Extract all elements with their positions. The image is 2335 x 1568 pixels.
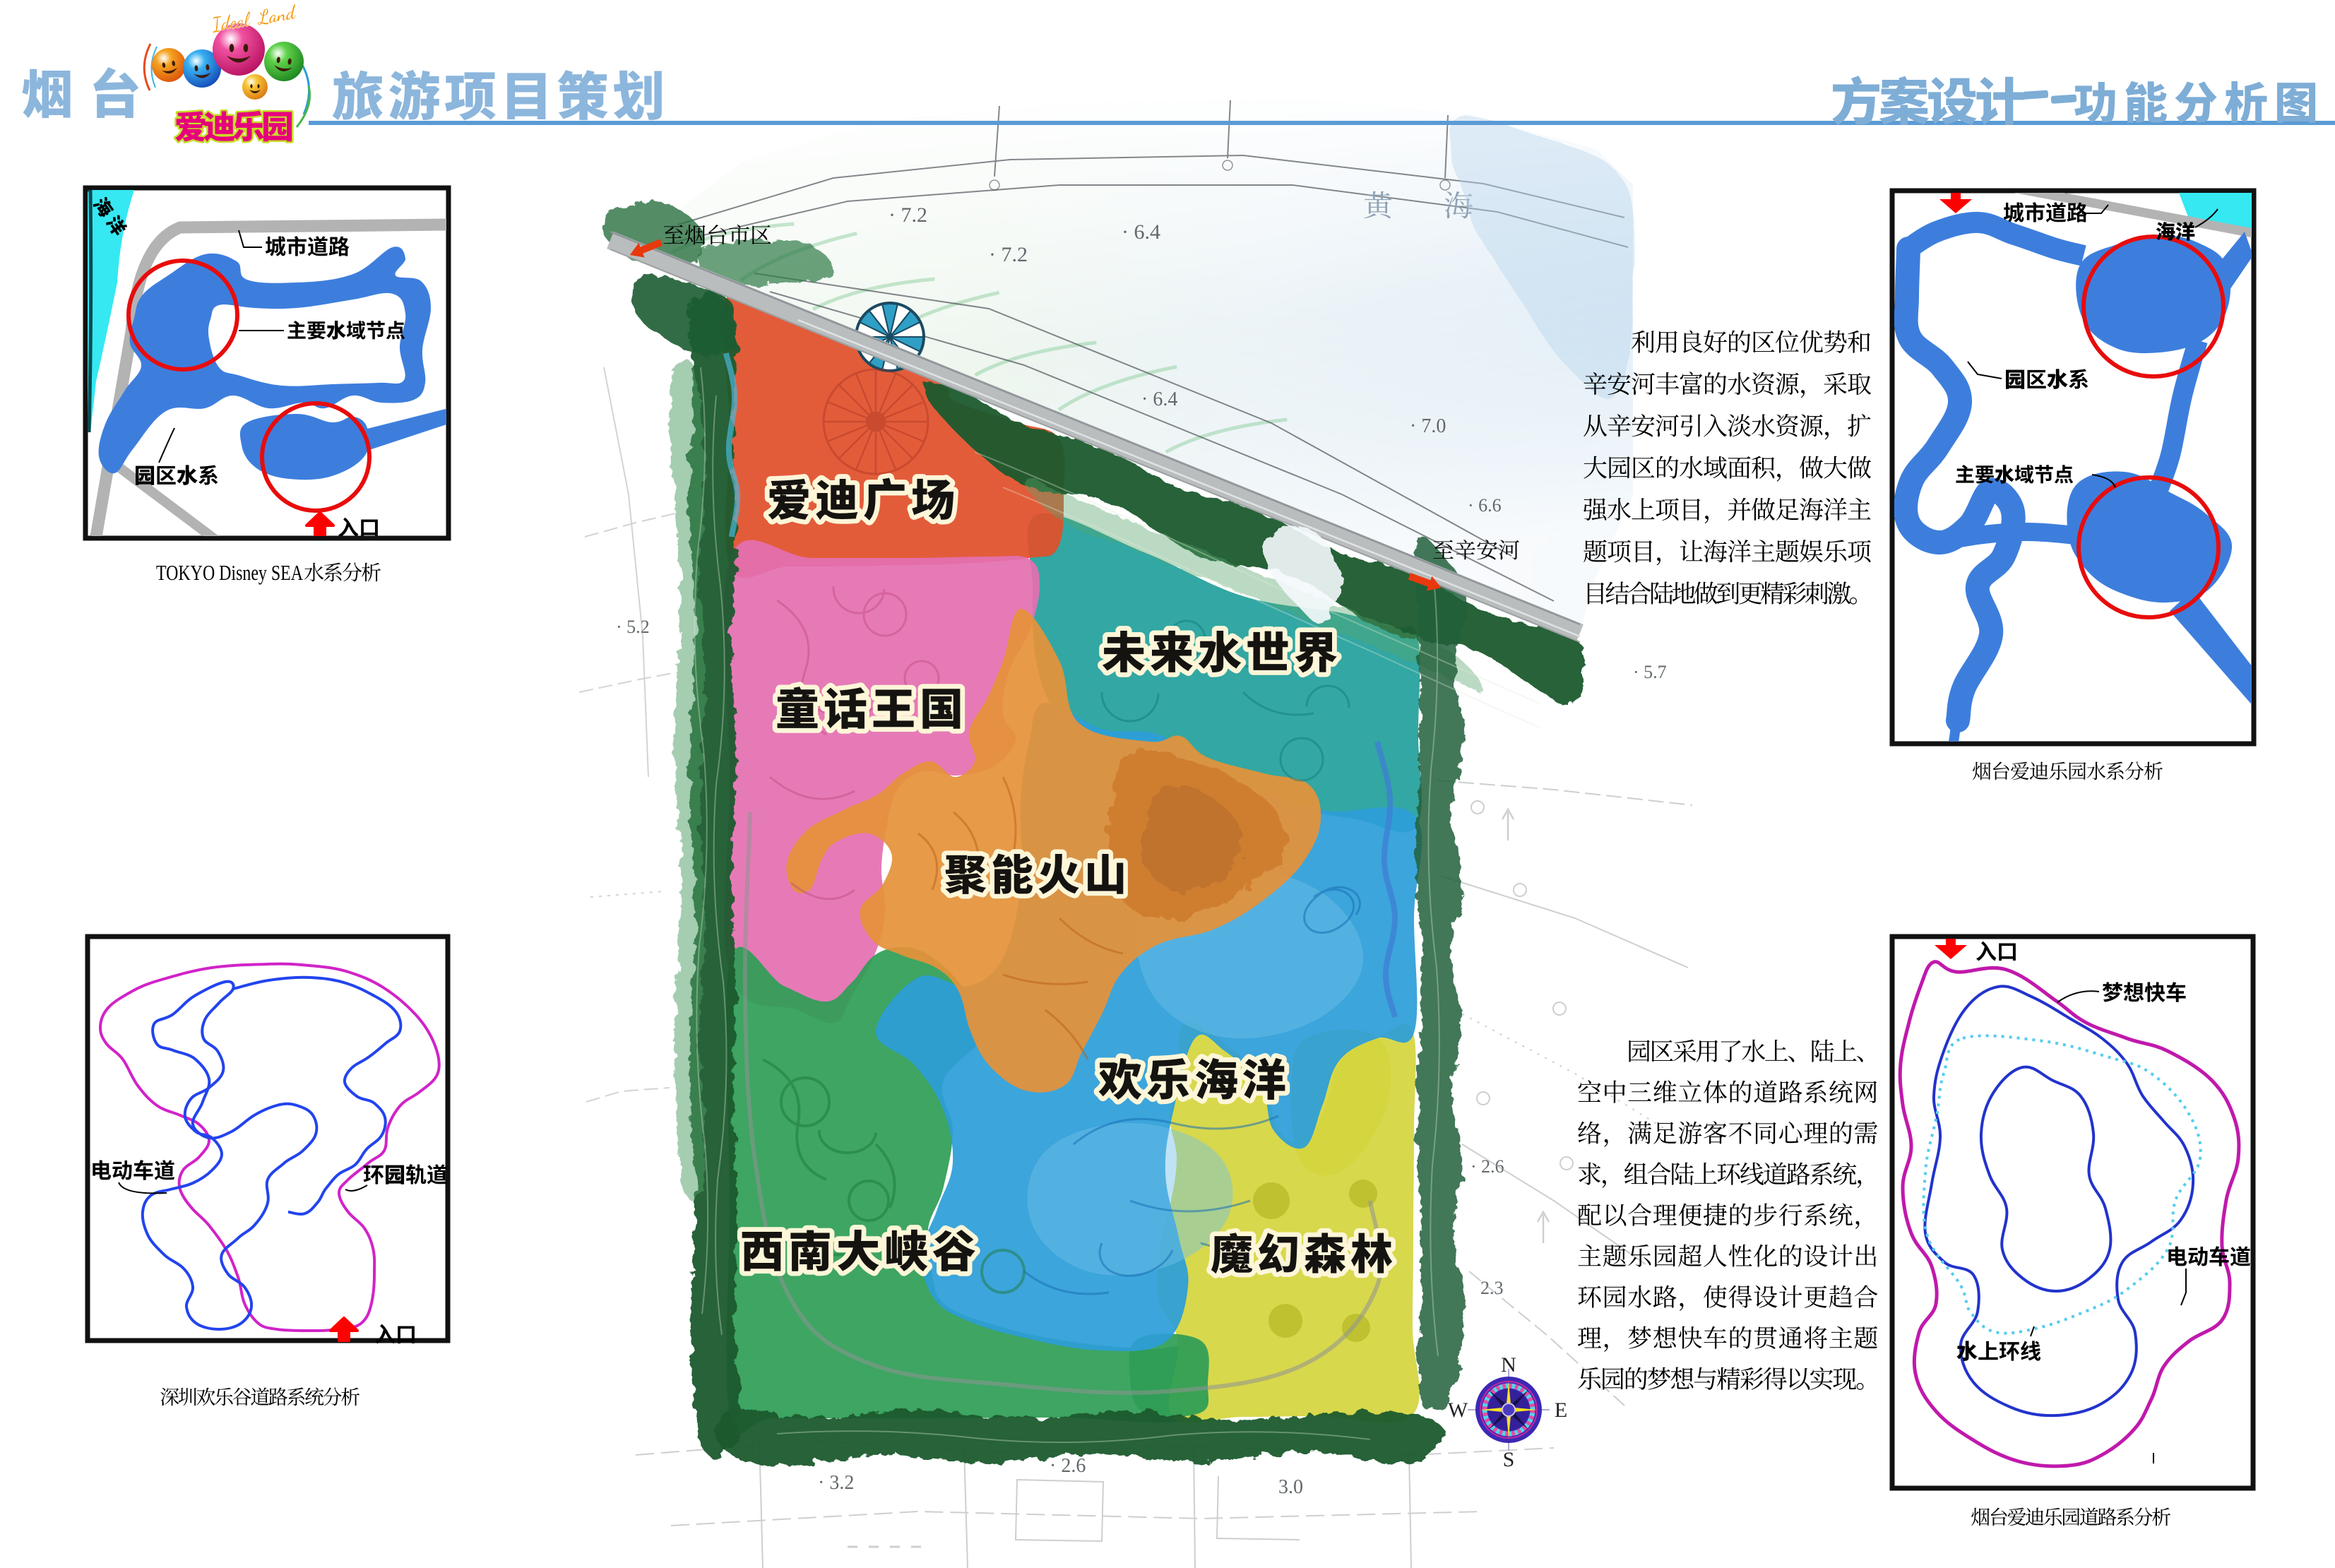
svg-text:3.0: 3.0 [1278, 1476, 1303, 1498]
svg-text:2.3: 2.3 [1480, 1278, 1504, 1298]
svg-text:· 5.2: · 5.2 [616, 617, 650, 637]
svg-text:· 5.7: · 5.7 [1633, 662, 1667, 682]
svg-text:· 2.6: · 2.6 [1050, 1455, 1086, 1477]
svg-text:W: W [1448, 1398, 1468, 1422]
svg-text:· 3.2: · 3.2 [818, 1472, 854, 1494]
svg-text:· 7.2: · 7.2 [989, 243, 1028, 266]
svg-text:S: S [1503, 1448, 1515, 1471]
svg-text:· 7.2: · 7.2 [889, 203, 927, 227]
svg-text:· 7.0: · 7.0 [1410, 415, 1446, 437]
svg-text:· 6.4: · 6.4 [1141, 388, 1177, 410]
svg-text:N: N [1501, 1353, 1516, 1377]
svg-text:· 6.4: · 6.4 [1122, 220, 1160, 244]
svg-text:TOKYO Disney SEA: TOKYO Disney SEA [156, 560, 303, 585]
svg-text:· 6.6: · 6.6 [1468, 495, 1502, 516]
svg-text:E: E [1555, 1398, 1567, 1422]
